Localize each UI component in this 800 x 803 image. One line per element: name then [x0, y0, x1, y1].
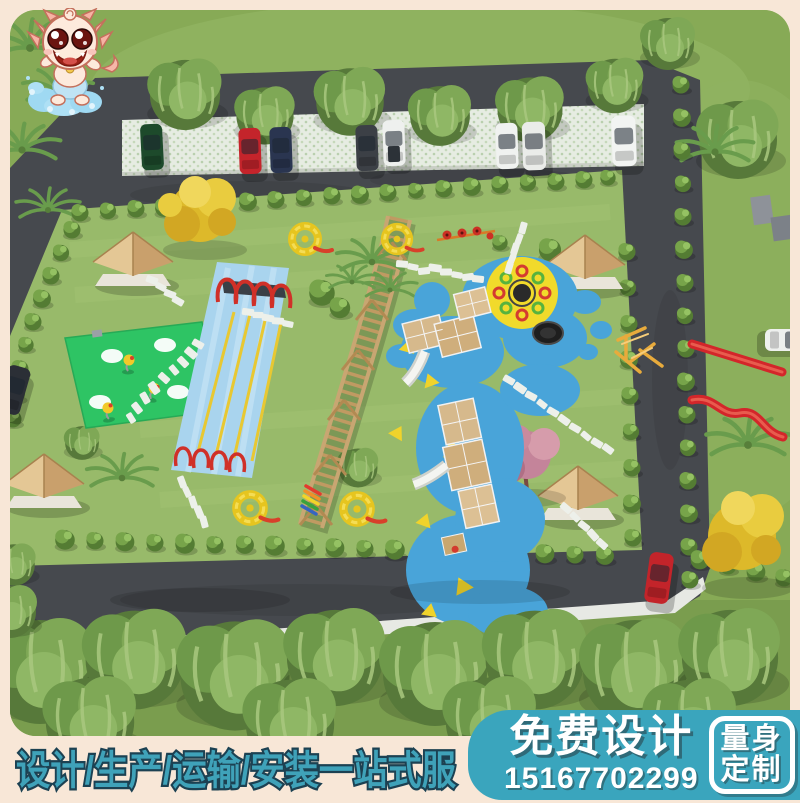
promo-left: 免费设计 15167702299	[504, 715, 699, 796]
custom-made-badge: 量身 定制	[709, 716, 795, 795]
dragon-mascot-logo	[6, 8, 138, 120]
yellow-spinner-circle	[486, 257, 558, 329]
badge-line2: 定制	[721, 755, 783, 786]
service-text-banner: 设计/生产/运输/安装一站式服	[12, 742, 472, 798]
badge-line1: 量身	[721, 724, 783, 755]
promo-panel: 免费设计 15167702299 量身 定制	[468, 710, 800, 800]
service-text: 设计/生产/运输/安装一站式服	[16, 749, 456, 793]
promo-title: 免费设计	[509, 715, 693, 759]
promo-phone: 15167702299	[504, 762, 699, 796]
trampoline	[533, 322, 563, 344]
promo-poster: { "frame": { "background": "#f8e7d7" }, …	[0, 0, 800, 800]
car-white-right	[757, 329, 790, 357]
mascot-head	[28, 8, 112, 69]
